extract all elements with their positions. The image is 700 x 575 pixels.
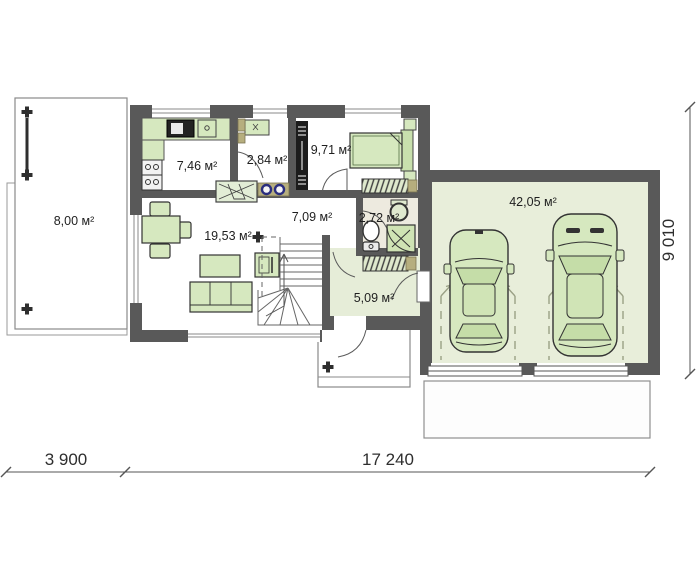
- wardrobe-icon: [296, 121, 308, 190]
- hob-icon: [198, 120, 216, 137]
- floor-plan-drawing: 8,00 м² 7,46 м² 2,84 м² 9,71 м² 7,09 м² …: [0, 0, 700, 575]
- chair-icon: [150, 244, 170, 258]
- entry-door-opening: [334, 316, 366, 330]
- kitchen-window-icon: [152, 105, 210, 118]
- coffee-table-icon: [200, 255, 240, 277]
- vestibule-closet-icon: [363, 256, 416, 271]
- tv-stand-icon: [255, 253, 279, 277]
- pantry-window-icon: [253, 105, 287, 118]
- stove-icon: [142, 160, 162, 190]
- bedroom-window-icon: [345, 105, 401, 118]
- room-label-pantry: 2,84 м²: [247, 153, 288, 167]
- garage-door-icon: [428, 363, 522, 376]
- room-label-hall: 7,09 м²: [292, 210, 333, 224]
- room-label-bedroom: 9,71 м²: [311, 143, 352, 157]
- room-label-terrace: 8,00 м²: [54, 214, 95, 228]
- wall-kitchen-pantry: [230, 118, 238, 152]
- dimension-bottom-right: 17 240: [362, 450, 414, 469]
- wall-bedroom-hall: [296, 190, 322, 198]
- room-label-garage: 42,05 м²: [509, 195, 557, 209]
- terrace-glazed-door-icon: [130, 215, 142, 303]
- fireplace-icon: [216, 181, 257, 202]
- floor-plan-page: 8,00 м² 7,46 м² 2,84 м² 9,71 м² 7,09 м² …: [0, 0, 700, 575]
- room-label-bathroom: 2,72 м²: [359, 211, 400, 225]
- bedroom-closet-icon: [362, 179, 417, 193]
- room-label-living: 19,53 м²: [204, 229, 252, 243]
- room-label-kitchen: 7,46 м²: [177, 159, 218, 173]
- living-window-icon: [188, 330, 320, 342]
- driveway-apron: [424, 381, 650, 438]
- sofa-icon: [190, 282, 252, 312]
- car-icon: [546, 214, 624, 356]
- wall-strip-burners-icon: [258, 183, 289, 196]
- dimension-line-bottom: [1, 467, 655, 477]
- shower-icon: [387, 225, 415, 252]
- garage-door-icon: [534, 363, 628, 376]
- garage-entry-door-leaf: [417, 271, 430, 302]
- dimension-bottom-left: 3 900: [45, 450, 88, 469]
- chair-icon: [150, 202, 170, 216]
- car-icon: [444, 230, 514, 352]
- stair-wall: [322, 235, 330, 325]
- nightstand-icon: [404, 119, 416, 130]
- dimension-line-right: [685, 102, 695, 379]
- room-label-vestibule: 5,09 м²: [354, 291, 395, 305]
- toilet-icon: [363, 221, 379, 251]
- dimension-right-side: 9 010: [659, 219, 678, 262]
- wall-hall-bathroom: [356, 198, 363, 211]
